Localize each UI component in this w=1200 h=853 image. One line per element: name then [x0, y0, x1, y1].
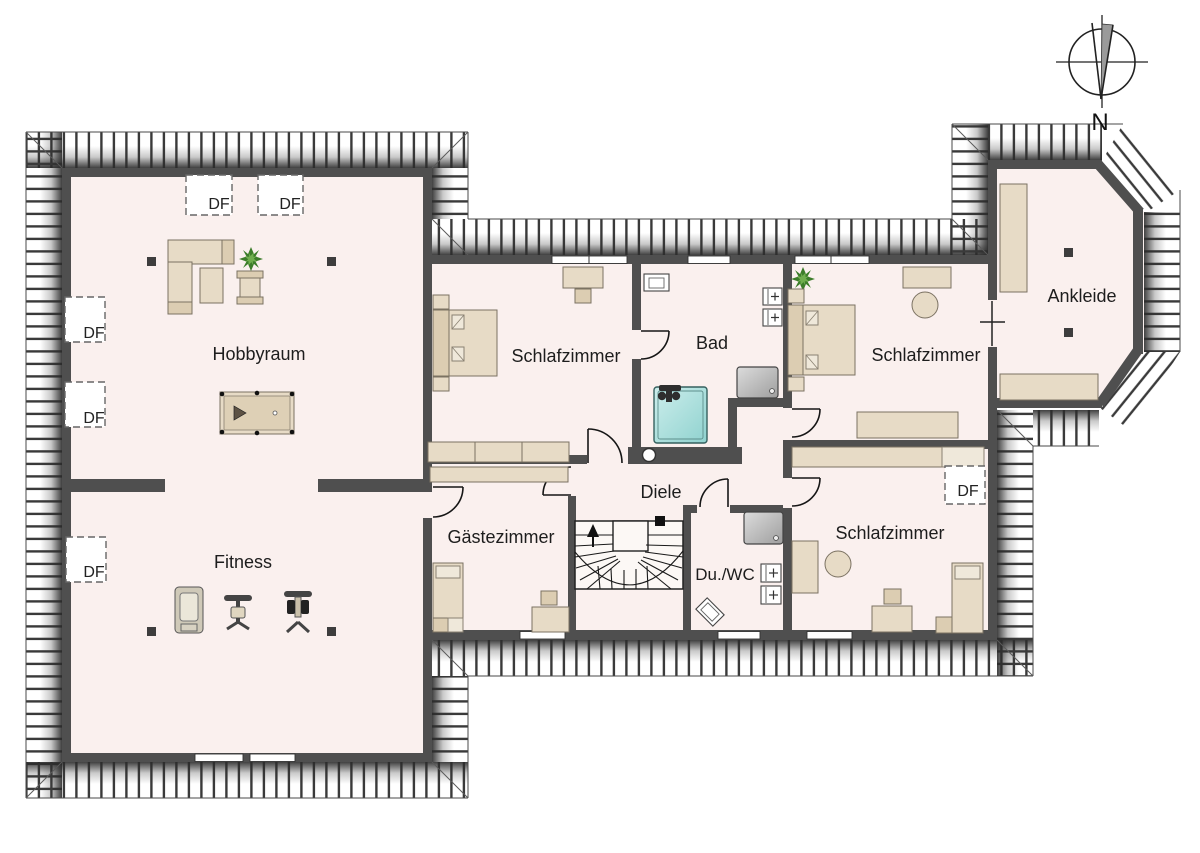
window	[718, 632, 760, 640]
pipe-shaft	[643, 449, 656, 462]
weight-bench	[175, 587, 203, 633]
room-label-gaestezimmer: Gästezimmer	[447, 527, 554, 547]
toilet-icon	[761, 564, 781, 582]
room-label-diele: Diele	[640, 482, 681, 502]
window	[195, 754, 243, 762]
nightstand	[788, 377, 804, 391]
double-bed	[433, 310, 497, 376]
window	[250, 754, 295, 762]
sideboard	[792, 447, 984, 467]
sideboard	[428, 442, 569, 462]
staircase	[575, 516, 683, 589]
room-label-du-wc: Du./WC	[695, 565, 755, 584]
desk	[532, 607, 569, 632]
roof-window-label: DF	[83, 410, 105, 427]
room-label-fitness: Fitness	[214, 552, 272, 572]
compass-rose: N	[1056, 15, 1148, 136]
nightstand	[788, 289, 804, 303]
round-table	[912, 292, 938, 318]
newel-post	[655, 516, 665, 526]
nightstand	[433, 377, 449, 391]
roof-post	[147, 257, 156, 266]
bathtub	[654, 385, 707, 443]
billiard-table	[220, 391, 295, 436]
coffee-table	[200, 268, 223, 303]
shower	[737, 367, 778, 398]
window	[688, 256, 730, 264]
roof-window-label: DF	[279, 196, 301, 213]
room-label-schlafzimmer-oben-rechts: Schlafzimmer	[871, 345, 980, 365]
roof-window-label: DF	[83, 564, 105, 581]
nightstand	[433, 295, 449, 309]
double-bed	[788, 305, 855, 375]
bench	[792, 541, 818, 593]
shower	[744, 512, 783, 544]
desk	[872, 606, 912, 632]
window	[520, 632, 565, 640]
floor-plan-page: DF DF DF DF Hobby	[0, 0, 1200, 848]
single-bed	[433, 563, 463, 632]
window	[807, 632, 852, 640]
bidet-icon	[761, 586, 781, 604]
washbasin	[644, 274, 669, 291]
roof-window-label: DF	[208, 196, 230, 213]
chair	[541, 591, 557, 605]
roof-window-label: DF	[957, 483, 979, 500]
roof-post	[1064, 248, 1073, 257]
roof-post	[147, 627, 156, 636]
desk	[563, 267, 603, 288]
wardrobe	[1000, 374, 1098, 400]
roof-post	[327, 627, 336, 636]
armchair	[237, 271, 263, 304]
room-label-schlafzimmer-unten-rechts: Schlafzimmer	[835, 523, 944, 543]
room-label-bad: Bad	[696, 333, 728, 353]
floorplan-svg: DF DF DF DF Hobby	[0, 0, 1200, 848]
chair	[884, 589, 901, 604]
chair	[575, 289, 591, 303]
room-label-schlafzimmer-links: Schlafzimmer	[511, 346, 620, 366]
roof-post	[327, 257, 336, 266]
compass-north-label: N	[1091, 109, 1108, 136]
round-table	[825, 551, 851, 577]
bidet-icon	[763, 309, 782, 326]
sideboard	[430, 467, 568, 482]
wardrobe	[1000, 184, 1027, 292]
toilet-icon	[763, 288, 782, 305]
roof-window-label: DF	[83, 325, 105, 342]
sideboard	[857, 412, 958, 438]
window	[795, 256, 869, 264]
room-label-hobbyraum: Hobbyraum	[212, 344, 305, 364]
bench	[903, 267, 951, 288]
roof-post	[1064, 328, 1073, 337]
room-label-ankleide: Ankleide	[1047, 286, 1116, 306]
